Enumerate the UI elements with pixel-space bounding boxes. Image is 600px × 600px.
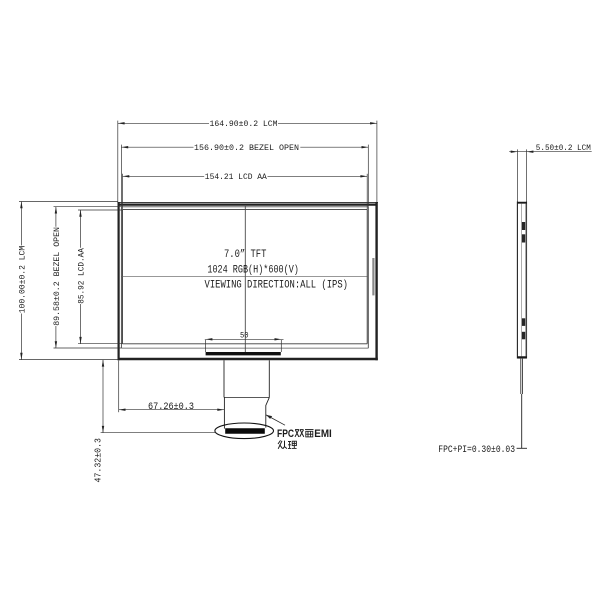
svg-text:FPC: FPC (277, 428, 294, 440)
svg-text:EMI: EMI (314, 428, 332, 440)
svg-text:50: 50 (240, 331, 249, 341)
svg-text:164.90±0.2 LCM: 164.90±0.2 LCM (210, 119, 278, 129)
svg-text:100.00±0.2 LCM: 100.00±0.2 LCM (17, 246, 27, 314)
svg-text:47.32±0.3: 47.32±0.3 (93, 438, 103, 483)
svg-text:154.21 LCD AA: 154.21 LCD AA (205, 172, 268, 182)
svg-text:FPC+PI=0.30±0.03: FPC+PI=0.30±0.03 (438, 445, 515, 456)
svg-text:85.92 LCD.AA: 85.92 LCD.AA (77, 247, 87, 303)
svg-text:1024 RGB(H)*600(V): 1024 RGB(H)*600(V) (207, 264, 299, 276)
svg-text:67.26±0.3: 67.26±0.3 (148, 402, 194, 413)
svg-text:89.58±0.2 BEZEL OPEN: 89.58±0.2 BEZEL OPEN (52, 227, 62, 326)
svg-text:VIEWING DIRECTION:ALL (IPS): VIEWING DIRECTION:ALL (IPS) (205, 279, 349, 291)
svg-text:7.0” TFT: 7.0” TFT (224, 249, 267, 261)
svg-text:156.90±0.2 BEZEL OPEN: 156.90±0.2 BEZEL OPEN (194, 143, 299, 153)
svg-text:5.50±0.2 LCM: 5.50±0.2 LCM (536, 143, 591, 153)
